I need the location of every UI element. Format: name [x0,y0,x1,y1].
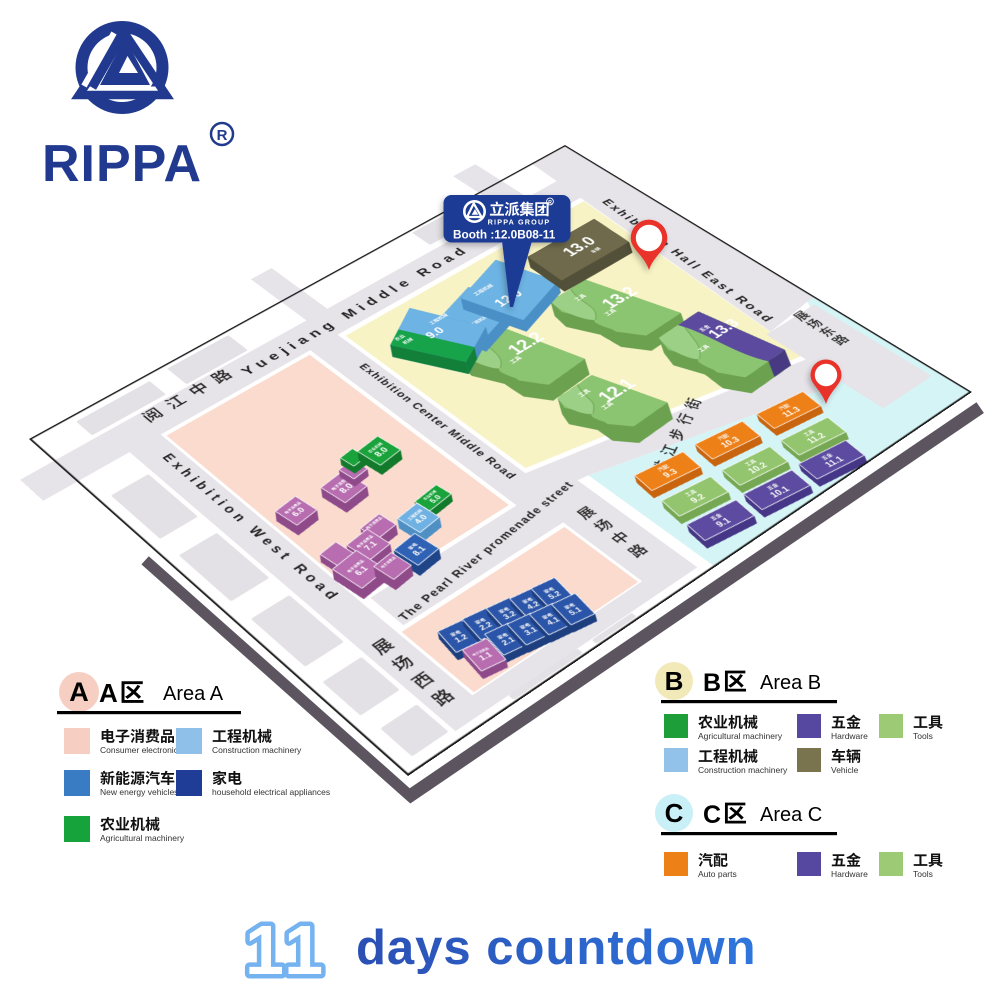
svg-text:A: A [69,677,89,707]
svg-text:Vehicle: Vehicle [831,765,859,775]
svg-text:Area B: Area B [760,672,821,694]
svg-text:Area C: Area C [760,804,822,826]
svg-text:Agricultural machinery: Agricultural machinery [100,833,185,843]
svg-text:Consumer electronics: Consumer electronics [100,745,182,755]
svg-text:Tools: Tools [913,869,933,879]
svg-text:Hardware: Hardware [831,869,868,879]
svg-text:R: R [217,127,228,144]
svg-text:Construction machinery: Construction machinery [212,745,302,755]
svg-text:household electrical appliance: household electrical appliances [212,787,330,797]
svg-text:New energy vehicles: New energy vehicles [100,787,178,797]
svg-text:B: B [665,666,684,696]
svg-text:B: B [703,669,721,697]
svg-text:Tools: Tools [913,731,933,741]
svg-text:A: A [99,678,118,708]
svg-text:Hardware: Hardware [831,731,868,741]
svg-text:11: 11 [245,911,327,989]
svg-text:RIPPA: RIPPA [42,135,202,193]
svg-text:C: C [703,801,721,829]
svg-text:Agricultural machinery: Agricultural machinery [698,731,783,741]
svg-text:Area A: Area A [163,683,224,705]
svg-text:Auto parts: Auto parts [698,869,737,879]
svg-text:Construction machinery: Construction machinery [698,765,788,775]
svg-text:days countdown: days countdown [356,921,757,975]
svg-text:C: C [665,798,684,828]
